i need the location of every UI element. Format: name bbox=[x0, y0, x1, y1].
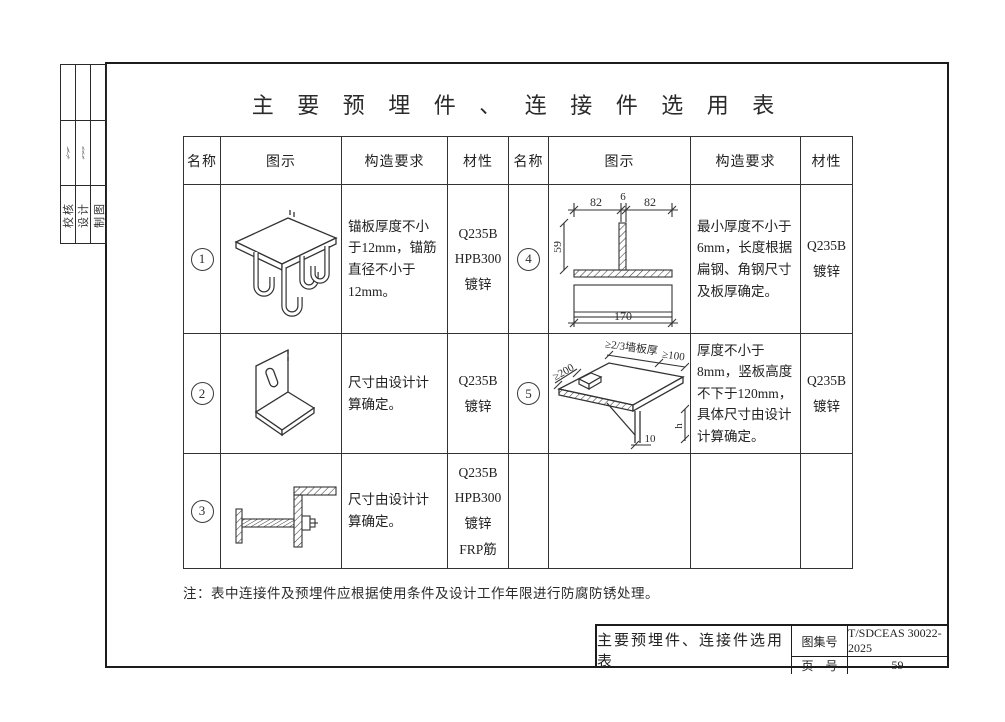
sidebar-blank-cell bbox=[91, 121, 106, 186]
dim-label: 10 bbox=[644, 433, 656, 445]
col-header-name: 名称 bbox=[184, 137, 221, 185]
page-number-value: 59 bbox=[847, 656, 947, 674]
item-number-circle: 1 bbox=[191, 248, 214, 271]
figure-through-bolt bbox=[221, 454, 342, 569]
figure-tee-section: 82 6 82 59 170 bbox=[549, 185, 691, 334]
item-number: 3 bbox=[184, 454, 221, 569]
signature-cell-check bbox=[61, 121, 76, 186]
sidebar-label: 制图 bbox=[91, 202, 107, 228]
requirement-text: 锚板厚度不小于12mm，锚筋直径不小于12mm。 bbox=[342, 185, 448, 334]
signature-cell-design bbox=[76, 121, 91, 186]
sidebar-blank-cell bbox=[61, 65, 76, 121]
handwritten-signature-icon bbox=[61, 146, 75, 160]
sidebar-label: 设计 bbox=[75, 202, 91, 228]
sidebar-label: 校核 bbox=[60, 202, 76, 228]
item-number: 4 bbox=[509, 185, 549, 334]
requirement-text: 尺寸由设计计算确定。 bbox=[342, 334, 448, 454]
signature-sidebar: 校核 设计 制图 bbox=[60, 64, 107, 244]
requirement-text: 尺寸由设计计算确定。 bbox=[342, 454, 448, 569]
item-number-circle: 2 bbox=[191, 382, 214, 405]
item-number: 2 bbox=[184, 334, 221, 454]
sidebar-blank-cell bbox=[76, 65, 91, 121]
col-header-requirement: 构造要求 bbox=[691, 137, 801, 185]
angle-bracket-diagram-icon bbox=[224, 338, 339, 450]
material-text: Q235B 镀锌 bbox=[801, 185, 853, 334]
col-header-material: 材性 bbox=[448, 137, 509, 185]
material-text: Q235B 镀锌 bbox=[448, 334, 509, 454]
material-text: Q235B HPB300 镀锌 bbox=[448, 185, 509, 334]
table-footnote: 注：表中连接件及预埋件应根据使用条件及设计工作年限进行防腐防锈处理。 bbox=[183, 582, 659, 602]
title-block-name: 主要预埋件、连接件选用表 bbox=[597, 626, 791, 674]
dim-label: h bbox=[673, 422, 685, 428]
atlas-number-value: T/SDCEAS 30022-2025 bbox=[847, 626, 947, 656]
sidebar-blank-cell bbox=[91, 65, 106, 121]
item-number-circle: 3 bbox=[191, 500, 214, 523]
selection-table: 名称 图示 构造要求 材性 名称 图示 构造要求 材性 1 bbox=[183, 136, 853, 569]
empty-cell bbox=[691, 454, 801, 569]
sidebar-label-draw: 制图 bbox=[91, 186, 106, 243]
sidebar-label-design: 设计 bbox=[76, 186, 91, 243]
dim-label: 6 bbox=[620, 191, 626, 203]
sidebar-label-check: 校核 bbox=[61, 186, 76, 243]
dim-label: ≥100 bbox=[661, 348, 685, 363]
col-header-figure: 图示 bbox=[221, 137, 342, 185]
dim-label: 170 bbox=[614, 309, 632, 323]
col-header-requirement: 构造要求 bbox=[342, 137, 448, 185]
requirement-text: 厚度不小于8mm，竖板高度不下于120mm，具体尺寸由设计计算确定。 bbox=[691, 334, 801, 454]
item-number-circle: 4 bbox=[517, 248, 540, 271]
wall-connector-diagram-icon: ≥200 ≥2/3墙板厚 ≥100 h 10 bbox=[551, 337, 689, 451]
empty-cell bbox=[801, 454, 853, 569]
through-bolt-diagram-icon bbox=[224, 457, 339, 565]
tee-section-diagram-icon: 82 6 82 59 170 bbox=[554, 189, 686, 329]
page-number-label: 页 号 bbox=[791, 656, 847, 674]
figure-anchor-plate bbox=[221, 185, 342, 334]
item-number-circle: 5 bbox=[517, 382, 540, 405]
requirement-text: 最小厚度不小于6mm，长度根据扁钢、角钢尺寸及板厚确定。 bbox=[691, 185, 801, 334]
material-text: Q235B 镀锌 bbox=[801, 334, 853, 454]
col-header-material: 材性 bbox=[801, 137, 853, 185]
item-number: 1 bbox=[184, 185, 221, 334]
handwritten-signature-icon bbox=[76, 146, 90, 160]
dim-label: ≥2/3墙板厚 bbox=[604, 337, 659, 358]
anchor-plate-diagram-icon bbox=[224, 190, 339, 328]
atlas-number-label: 图集号 bbox=[791, 626, 847, 656]
dim-label: 59 bbox=[554, 241, 564, 253]
col-header-figure: 图示 bbox=[549, 137, 691, 185]
figure-wall-connector: ≥200 ≥2/3墙板厚 ≥100 h 10 bbox=[549, 334, 691, 454]
material-text: Q235B HPB300 镀锌 FRP筋 bbox=[448, 454, 509, 569]
page-title: 主 要 预 埋 件 、 连 接 件 选 用 表 bbox=[183, 88, 852, 120]
dim-label: ≥200 bbox=[551, 361, 577, 383]
col-header-name: 名称 bbox=[509, 137, 549, 185]
figure-angle-bracket bbox=[221, 334, 342, 454]
dim-label: 82 bbox=[590, 195, 602, 209]
empty-cell bbox=[549, 454, 691, 569]
item-number: 5 bbox=[509, 334, 549, 454]
empty-cell bbox=[509, 454, 549, 569]
dim-label: 82 bbox=[644, 195, 656, 209]
title-block: 主要预埋件、连接件选用表 图集号 T/SDCEAS 30022-2025 页 号… bbox=[595, 624, 949, 668]
